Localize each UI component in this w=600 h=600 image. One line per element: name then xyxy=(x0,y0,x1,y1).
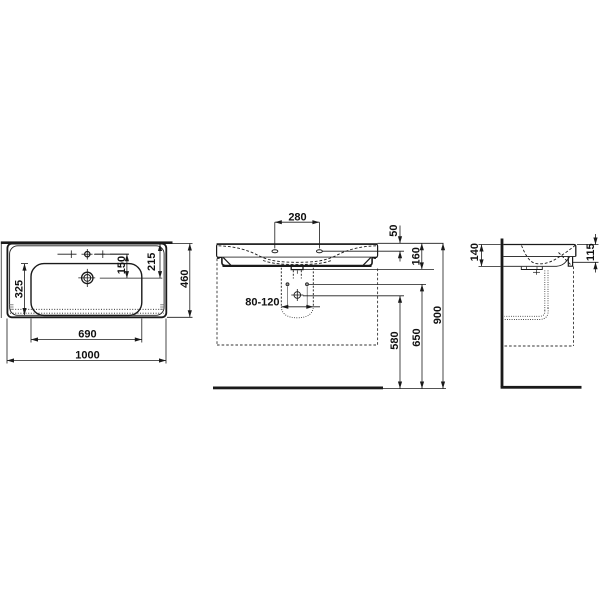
svg-text:580: 580 xyxy=(389,331,401,349)
svg-text:325: 325 xyxy=(14,280,26,298)
svg-text:140: 140 xyxy=(469,243,481,261)
svg-text:460: 460 xyxy=(179,270,191,288)
svg-text:215: 215 xyxy=(146,253,158,271)
svg-text:280: 280 xyxy=(288,212,306,224)
svg-text:690: 690 xyxy=(78,329,96,341)
svg-text:80-120: 80-120 xyxy=(245,297,279,309)
svg-text:1000: 1000 xyxy=(75,350,99,362)
svg-text:900: 900 xyxy=(432,306,444,324)
svg-text:150: 150 xyxy=(116,256,128,274)
svg-text:160: 160 xyxy=(411,247,423,265)
svg-text:650: 650 xyxy=(411,328,423,346)
svg-text:115: 115 xyxy=(585,243,597,261)
svg-text:50: 50 xyxy=(388,224,400,236)
